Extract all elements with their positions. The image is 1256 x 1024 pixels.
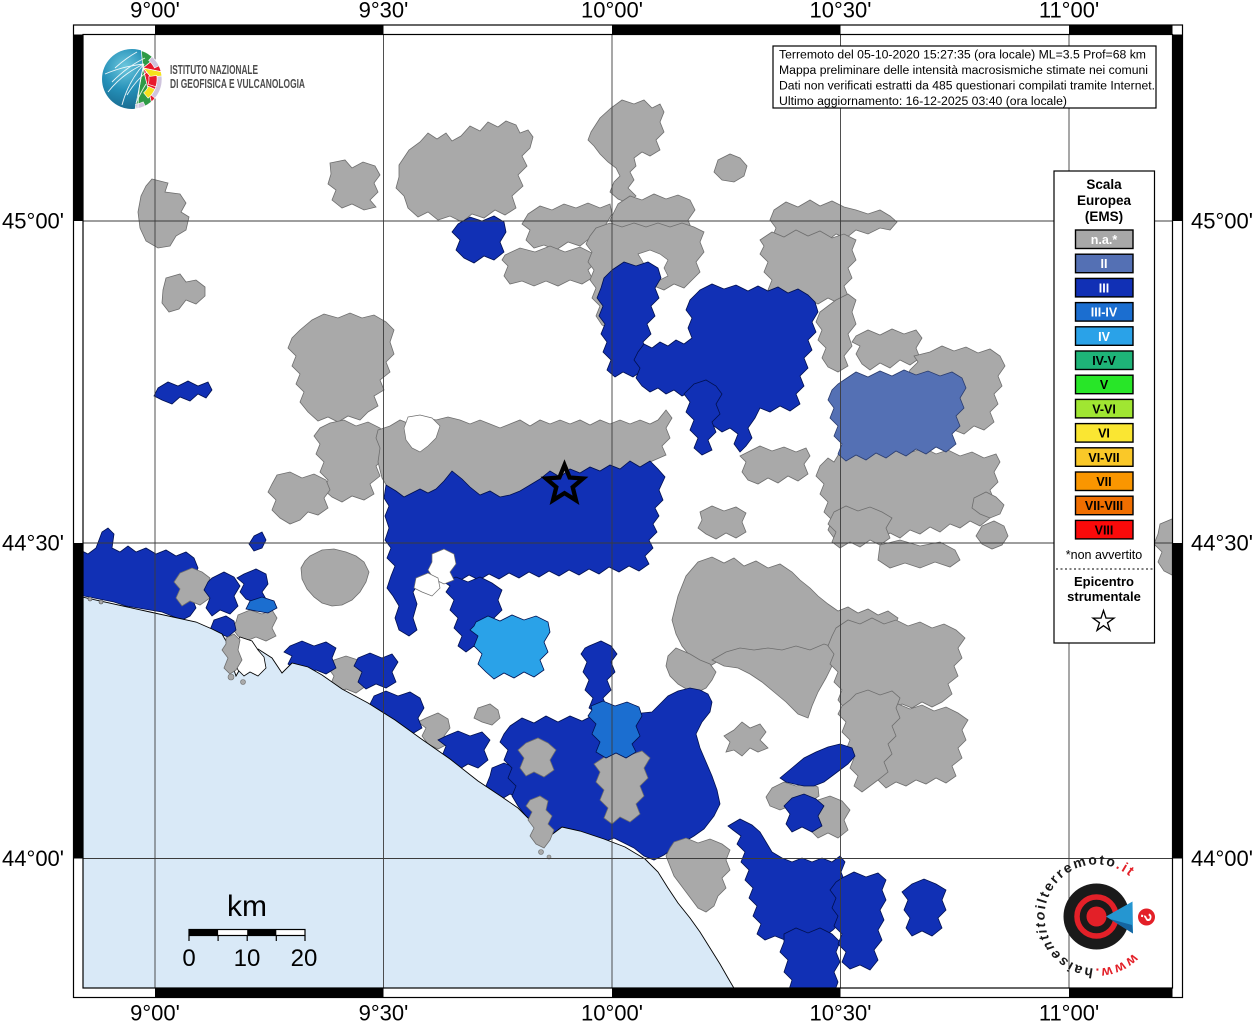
svg-text:IV-V: IV-V: [1092, 354, 1116, 368]
svg-text:10°30': 10°30': [810, 0, 872, 23]
svg-text:45°00': 45°00': [1191, 209, 1253, 234]
svg-text:IV: IV: [1098, 330, 1110, 344]
svg-text:44°30': 44°30': [1191, 531, 1253, 556]
svg-text:10°00': 10°00': [581, 0, 643, 23]
svg-text:DI GEOFISICA E VULCANOLOGIA: DI GEOFISICA E VULCANOLOGIA: [170, 77, 305, 91]
svg-text:strumentale: strumentale: [1067, 589, 1141, 604]
svg-text:45°00': 45°00': [2, 209, 64, 234]
svg-text:Scala: Scala: [1086, 177, 1122, 192]
svg-text:III: III: [1099, 281, 1109, 295]
svg-text:VII: VII: [1096, 475, 1111, 489]
svg-text:Epicentro: Epicentro: [1074, 574, 1134, 589]
svg-text:10°30': 10°30': [810, 1001, 872, 1024]
svg-text:10°00': 10°00': [581, 1001, 643, 1024]
svg-text:11°00': 11°00': [1039, 1001, 1099, 1024]
svg-text:44°00': 44°00': [1191, 846, 1253, 871]
svg-text:10: 10: [234, 945, 261, 972]
svg-text:VI-VII: VI-VII: [1088, 451, 1119, 465]
svg-text:11°00': 11°00': [1039, 0, 1099, 23]
svg-text:Terremoto del 05-10-2020 15:27: Terremoto del 05-10-2020 15:27:35 (ora l…: [779, 50, 1146, 62]
svg-text:Mappa preliminare delle intens: Mappa preliminare delle intensità macros…: [779, 65, 1148, 77]
svg-text:VI: VI: [1098, 427, 1110, 441]
svg-text:9°00': 9°00': [130, 0, 180, 23]
svg-text:VIII: VIII: [1095, 523, 1114, 537]
svg-text:9°30': 9°30': [359, 0, 409, 23]
svg-text:V-VI: V-VI: [1092, 402, 1116, 416]
svg-text:Europea: Europea: [1077, 193, 1132, 208]
svg-text:9°00': 9°00': [130, 1001, 180, 1024]
svg-text:Ultimo aggiornamento: 16-12-20: Ultimo aggiornamento: 16-12-2025 03:40 (…: [779, 96, 1067, 108]
svg-text:*non avvertito: *non avvertito: [1066, 548, 1142, 562]
svg-text:n.a.*: n.a.*: [1091, 233, 1118, 247]
svg-text:km: km: [227, 890, 267, 923]
svg-text:9°30': 9°30': [359, 1001, 409, 1024]
svg-text:ISTITUTO NAZIONALE: ISTITUTO NAZIONALE: [170, 63, 258, 77]
svg-text:Dati non verificati estratti d: Dati non verificati estratti da 485 ques…: [779, 81, 1155, 93]
svg-text:44°00': 44°00': [2, 846, 64, 871]
svg-text:VII-VIII: VII-VIII: [1085, 499, 1123, 513]
svg-text:0: 0: [182, 945, 195, 972]
svg-text:44°30': 44°30': [2, 531, 64, 556]
svg-text:V: V: [1100, 378, 1109, 392]
svg-text:III-IV: III-IV: [1091, 306, 1118, 320]
svg-text:(EMS): (EMS): [1085, 209, 1123, 224]
svg-text:20: 20: [291, 945, 318, 972]
svg-text:II: II: [1101, 257, 1108, 271]
